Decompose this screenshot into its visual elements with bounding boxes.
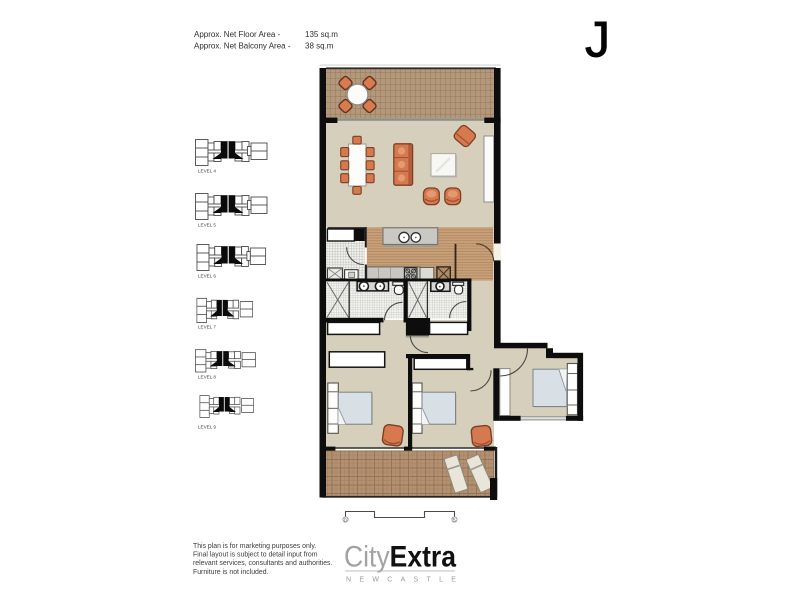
svg-text:135 sq.m: 135 sq.m [305,30,338,39]
svg-text:LEVEL 6: LEVEL 6 [198,274,216,279]
svg-text:LEVEL 7: LEVEL 7 [198,325,216,330]
svg-text:Furniture is not included.: Furniture is not included. [193,569,269,576]
svg-text:LEVEL 4: LEVEL 4 [198,169,216,174]
svg-text:LEVEL 8: LEVEL 8 [198,375,216,380]
svg-text:Approx. Net Balcony Area -: Approx. Net Balcony Area - [194,42,291,51]
svg-text:relevant services, consultants: relevant services, consultants and autho… [193,560,333,567]
svg-text:CityExtra: CityExtra [344,541,456,574]
svg-text:This plan is for marketing pur: This plan is for marketing purposes only… [193,543,316,550]
svg-text:NEWCASTLE: NEWCASTLE [346,577,464,584]
svg-text:5: 5 [453,518,456,524]
svg-text:38 sq.m: 38 sq.m [305,42,334,51]
svg-text:LEVEL 5: LEVEL 5 [198,223,216,228]
svg-text:Approx. Net Floor Area -: Approx. Net Floor Area - [194,30,281,39]
svg-text:Final layout is subject to det: Final layout is subject to detail input … [193,552,318,559]
svg-text:LEVEL 9: LEVEL 9 [198,425,216,430]
svg-text:0: 0 [344,518,347,524]
svg-text:J: J [585,12,610,68]
